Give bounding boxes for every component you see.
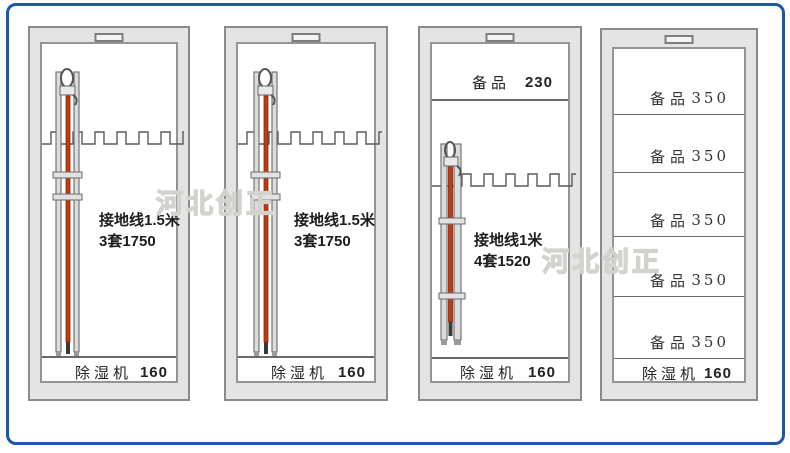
grounding-rod-orange [66,96,70,342]
grounding-wire-line1: 接地线1米 [474,232,542,249]
shelf-row: 备品 350 [614,270,744,290]
spare-parts-label: 备品 [650,146,690,167]
mid-bracket [439,218,465,224]
grounding-wire-line1: 接地线1.5米 [294,212,375,229]
spare-parts-label: 备品 [650,88,690,109]
dehumidifier-label: 除湿机 [271,362,328,383]
dehumidifier-label: 除湿机 [75,362,132,383]
grounding-wire-label: 接地线1.5米 3套1750 [99,210,180,252]
dehumidifier-row: 除湿机 160 [614,363,744,383]
mid-bracket [53,194,82,200]
mid-bracket [53,172,82,178]
shelf-divider [614,358,744,359]
rail-foot [454,340,461,345]
shelf-divider [614,236,744,237]
mid-bracket [251,172,280,178]
spare-parts-label: 备品 [650,210,690,231]
grounding-wire-line2: 3套1750 [294,233,351,250]
shelf-divider [238,356,374,358]
dehumidifier-row: 除湿机 160 [432,362,568,382]
dehumidifier-height: 160 [528,364,556,381]
hook-icon [259,69,271,87]
cabinet-3-handle [486,33,515,42]
rod-rail-left [254,72,259,352]
shelf-divider [614,172,744,173]
cabinet-2-interior: 接地线1.5米 3套1750 除湿机 160 [236,42,376,383]
shelf-row: 备品 350 [614,332,744,352]
dehumidifier-height: 160 [338,364,366,381]
grounding-rod-assembly [432,44,576,389]
cabinet-4-interior: 备品 350 备品 350 备品 350 备品 350 备品 350 [612,47,746,383]
cabinet-1: 接地线1.5米 3套1750 除湿机 160 [28,26,190,401]
cabinet-3-interior: 备品 230 接地线1米 4套1520 [430,42,570,383]
shelf-row: 备品 350 [614,210,744,230]
rod-tip [66,342,70,354]
grounding-wire-line2: 4套1520 [474,253,531,270]
shelf-height: 350 [691,211,729,229]
rail-foot [441,340,447,345]
cabinet-spec-diagram: 接地线1.5米 3套1750 除湿机 160 [0,0,790,453]
hanger-rack-line [238,132,382,144]
cabinet-1-handle [95,33,124,42]
rod-tip [264,342,268,354]
cabinet-4: 备品 350 备品 350 备品 350 备品 350 备品 350 [600,28,758,401]
hanger-rack-line [42,132,184,144]
shelf-height: 350 [691,333,729,351]
clamp-bracket [444,157,458,166]
hook-icon [61,69,73,87]
rod-rail-right [74,72,79,352]
rod-rail-left [56,72,61,352]
dehumidifier-height: 160 [140,364,168,381]
clamp-bracket [258,86,273,95]
dehumidifier-row: 除湿机 160 [238,362,374,382]
grounding-wire-label: 接地线1米 4套1520 [474,230,542,272]
clamp-bracket [60,86,75,95]
spare-parts-label: 备品 [650,270,690,291]
dehumidifier-label: 除湿机 [460,362,517,383]
spare-parts-label: 备品 [650,332,690,353]
rod-rail-left [441,144,447,340]
shelf-row: 备品 350 [614,146,744,166]
shelf-divider [614,296,744,297]
shelf-divider [42,356,176,358]
cabinet-2-handle [292,33,321,42]
grounding-wire-line2: 3套1750 [99,233,156,250]
shelf-row: 备品 350 [614,88,744,108]
cabinet-1-interior: 接地线1.5米 3套1750 除湿机 160 [40,42,178,383]
dehumidifier-height: 160 [704,365,732,382]
cabinet-4-handle [665,35,694,44]
shelf-height: 350 [691,89,729,107]
cabinet-2: 接地线1.5米 3套1750 除湿机 160 [224,26,388,401]
grounding-wire-line1: 接地线1.5米 [99,212,180,229]
shelf-divider [614,114,744,115]
mid-bracket [439,293,465,299]
grounding-rod-orange [264,96,268,342]
grounding-wire-label: 接地线1.5米 3套1750 [294,210,375,252]
shelf-divider [432,357,568,359]
cabinet-3: 备品 230 接地线1米 4套1520 [418,26,582,401]
dehumidifier-label: 除湿机 [642,363,699,384]
dehumidifier-row: 除湿机 160 [42,362,176,382]
rod-rail-right [272,72,277,352]
mid-bracket [251,194,280,200]
shelf-height: 350 [691,147,729,165]
rod-tip [449,322,453,336]
shelf-height: 350 [691,271,729,289]
